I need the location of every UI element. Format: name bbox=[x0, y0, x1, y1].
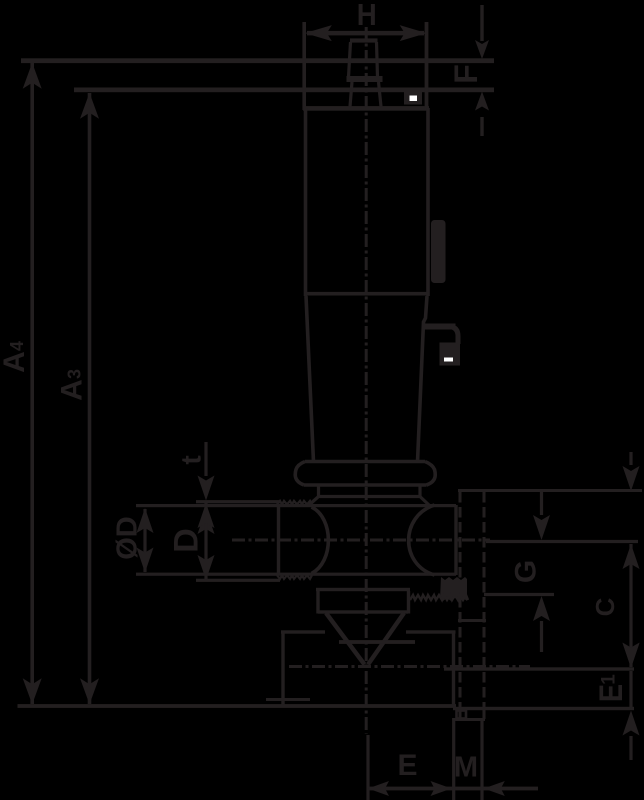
svg-text:M: M bbox=[454, 752, 478, 784]
svg-text:D: D bbox=[168, 528, 206, 553]
svg-text:3: 3 bbox=[65, 369, 85, 379]
svg-text:1: 1 bbox=[599, 674, 620, 685]
svg-text:4: 4 bbox=[7, 341, 27, 351]
svg-text:H: H bbox=[357, 0, 377, 32]
svg-text:A: A bbox=[56, 379, 89, 401]
svg-text:G: G bbox=[510, 560, 543, 583]
svg-text:ØD: ØD bbox=[112, 516, 144, 560]
svg-text:C: C bbox=[590, 597, 620, 616]
svg-text:A: A bbox=[0, 351, 31, 373]
svg-text:F: F bbox=[448, 64, 484, 84]
svg-text:t: t bbox=[176, 455, 207, 464]
svg-text:E: E bbox=[397, 749, 417, 782]
svg-text:E: E bbox=[593, 684, 629, 702]
